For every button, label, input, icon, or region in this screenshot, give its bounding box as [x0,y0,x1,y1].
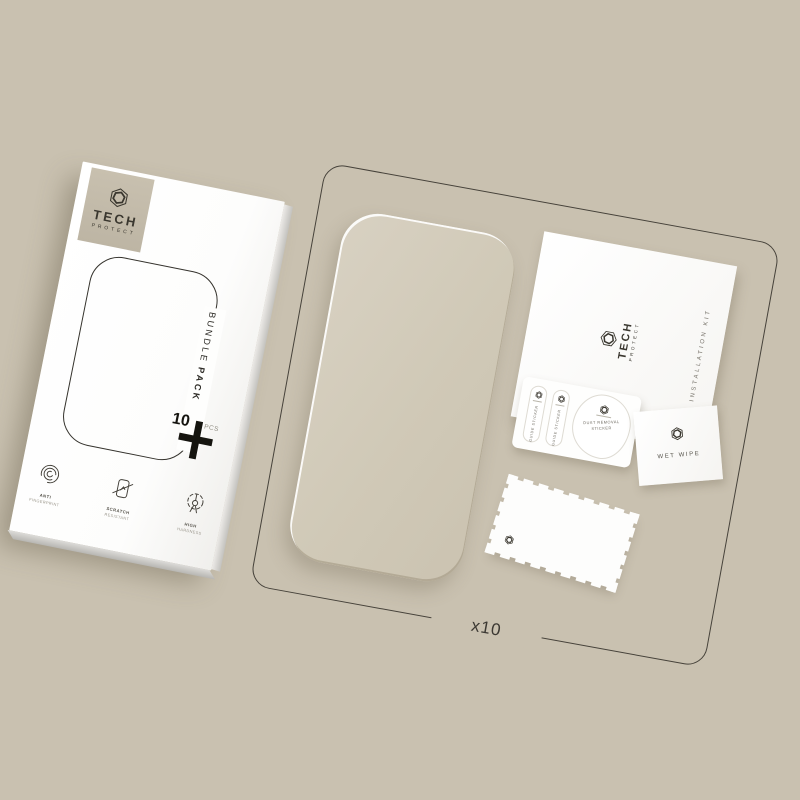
hexagon-logo-icon [106,185,131,210]
wet-wipe-label: WET WIPE [637,449,721,462]
product-box: TECH PROTECT BUNDLEPACK 10 PCS ANTI FING… [9,161,285,570]
feature-scratch-resistant: SCRATCH RESISTANT [93,471,149,524]
brand-logo-patch: TECH PROTECT [77,167,154,252]
guide-sticker-label: GUIDE STICKER [528,405,539,442]
installation-kit-label: INSTALLATION KIT [689,308,712,402]
feature-anti-fingerprint: ANTI FINGERPRINT [20,457,76,510]
glass-protector [284,208,520,588]
guide-sticker-2: GUIDE STICKER [544,389,571,448]
guide-sticker-label: GUIDE STICKER [551,409,562,446]
divider [555,404,564,407]
quantity-label: x10 [429,607,543,651]
hexagon-logo-icon [534,390,543,399]
fingerprint-icon [35,459,66,490]
card-brand-logo: TECH PROTECT [596,316,640,364]
guide-sticker-1: GUIDE STICKER [522,384,549,443]
hexagon-logo-icon [503,534,516,547]
hardness-icon [180,488,211,519]
hexagon-logo-icon [670,426,685,441]
scratch-icon [107,473,138,504]
dust-removal-label: DUST REMOVAL STICKER [573,419,629,432]
feature-high-hardness: HIGH HARDNESS [165,486,221,539]
kit-outline: TECH PROTECT INSTALLATION KIT GUIDE STIC… [249,162,780,668]
divider [533,400,542,403]
wet-wipe: WET WIPE [633,405,723,486]
dust-removal-line2: STICKER [574,425,630,433]
hexagon-logo-icon [556,394,565,403]
hexagon-logo-icon [598,328,619,349]
feature-icons-row: ANTI FINGERPRINT SCRATCH RESISTANT HIGH … [15,456,226,540]
dust-removal-sticker: DUST REMOVAL STICKER [567,390,636,463]
box-bottom-edge [8,530,216,580]
pieces-count-block: 10 PCS [164,408,225,469]
microfiber-cloth [488,478,636,590]
hexagon-logo-icon [599,404,611,416]
